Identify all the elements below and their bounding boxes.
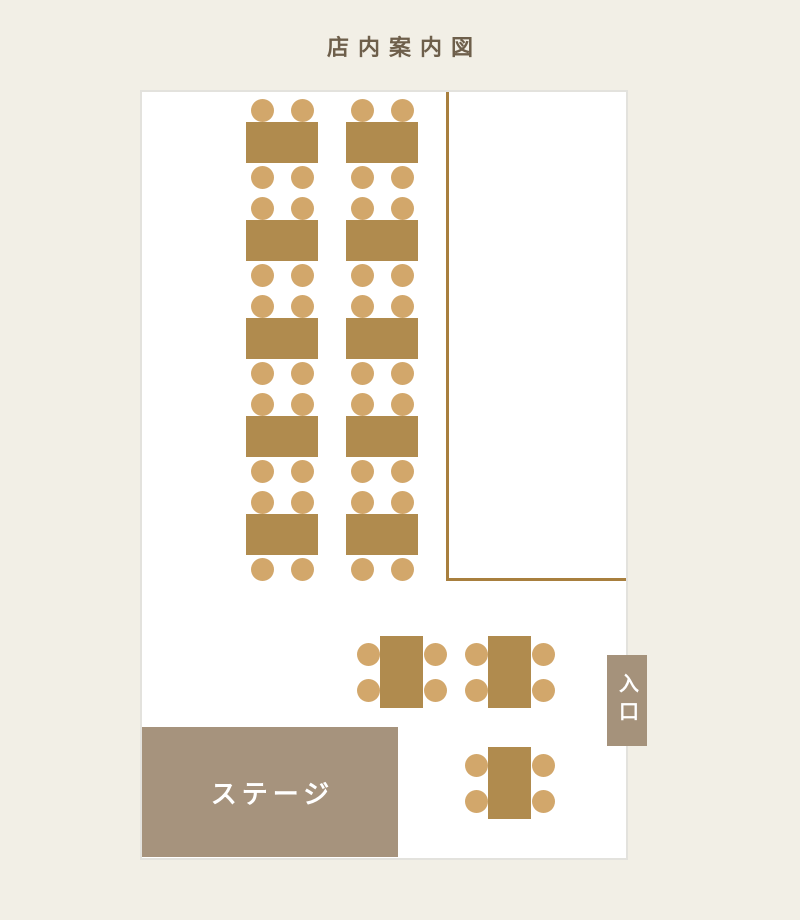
- chair-12-2: [465, 679, 488, 702]
- chair-3-4: [291, 362, 314, 385]
- chair-10-3: [351, 558, 374, 581]
- chair-8-1: [351, 295, 374, 318]
- dining-table-12: [488, 636, 531, 708]
- chair-6-3: [351, 166, 374, 189]
- dining-table-4: [246, 416, 318, 457]
- chair-13-4: [532, 790, 555, 813]
- chair-12-3: [532, 643, 555, 666]
- chair-12-1: [465, 643, 488, 666]
- chair-1-1: [251, 99, 274, 122]
- dining-table-10: [346, 514, 418, 555]
- chair-10-2: [391, 491, 414, 514]
- chair-1-2: [291, 99, 314, 122]
- chair-10-1: [351, 491, 374, 514]
- chair-4-2: [291, 393, 314, 416]
- dining-table-5: [246, 514, 318, 555]
- chair-12-4: [532, 679, 555, 702]
- dining-table-11: [380, 636, 423, 708]
- chair-13-3: [532, 754, 555, 777]
- chair-10-4: [391, 558, 414, 581]
- chair-9-4: [391, 460, 414, 483]
- chair-5-3: [251, 558, 274, 581]
- dining-table-8: [346, 318, 418, 359]
- chair-5-4: [291, 558, 314, 581]
- chair-8-4: [391, 362, 414, 385]
- store-map-page: 店内案内図 ステージ 入口: [0, 0, 800, 920]
- chair-2-1: [251, 197, 274, 220]
- chair-8-2: [391, 295, 414, 318]
- chair-2-4: [291, 264, 314, 287]
- dining-table-6: [346, 122, 418, 163]
- stage-label: ステージ: [206, 774, 334, 811]
- dining-table-1: [246, 122, 318, 163]
- wall-horizontal: [446, 578, 626, 581]
- chair-11-4: [424, 679, 447, 702]
- chair-1-3: [251, 166, 274, 189]
- chair-8-3: [351, 362, 374, 385]
- chair-11-3: [424, 643, 447, 666]
- stage: ステージ: [142, 727, 398, 857]
- chair-6-4: [391, 166, 414, 189]
- wall-vertical: [446, 92, 449, 581]
- chair-2-3: [251, 264, 274, 287]
- chair-11-1: [357, 643, 380, 666]
- chair-1-4: [291, 166, 314, 189]
- chair-2-2: [291, 197, 314, 220]
- chair-9-2: [391, 393, 414, 416]
- dining-table-2: [246, 220, 318, 261]
- page-title: 店内案内図: [0, 30, 800, 62]
- chair-9-3: [351, 460, 374, 483]
- chair-4-4: [291, 460, 314, 483]
- chair-7-2: [391, 197, 414, 220]
- chair-11-2: [357, 679, 380, 702]
- chair-7-4: [391, 264, 414, 287]
- dining-table-3: [246, 318, 318, 359]
- chair-13-2: [465, 790, 488, 813]
- chair-7-3: [351, 264, 374, 287]
- chair-13-1: [465, 754, 488, 777]
- chair-4-1: [251, 393, 274, 416]
- entrance-label: 入口: [613, 673, 642, 729]
- chair-6-1: [351, 99, 374, 122]
- chair-6-2: [391, 99, 414, 122]
- dining-table-9: [346, 416, 418, 457]
- dining-table-13: [488, 747, 531, 819]
- chair-3-1: [251, 295, 274, 318]
- chair-3-2: [291, 295, 314, 318]
- dining-table-7: [346, 220, 418, 261]
- chair-3-3: [251, 362, 274, 385]
- entrance: 入口: [607, 655, 647, 746]
- chair-4-3: [251, 460, 274, 483]
- chair-5-2: [291, 491, 314, 514]
- chair-7-1: [351, 197, 374, 220]
- chair-5-1: [251, 491, 274, 514]
- chair-9-1: [351, 393, 374, 416]
